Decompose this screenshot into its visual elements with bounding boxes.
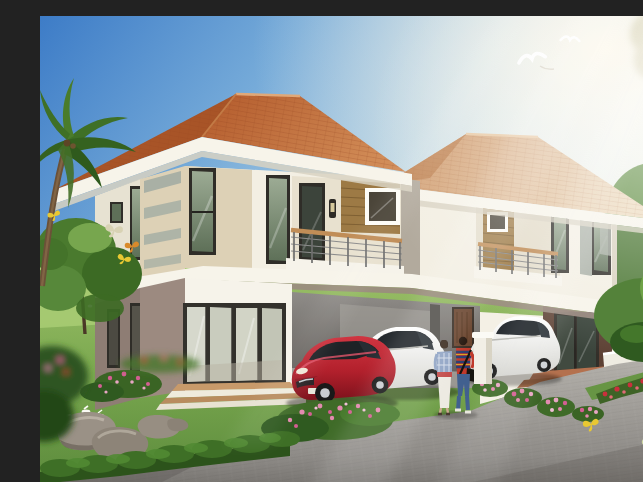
gate-post-cap xyxy=(472,332,494,338)
coconuts xyxy=(64,140,71,147)
white-skirt xyxy=(438,377,451,408)
left-front-window xyxy=(266,175,290,264)
left-bay-window xyxy=(189,168,216,255)
sliding-glass-door xyxy=(183,303,286,385)
house-rendering-scene: Twin two-storey house exterior rendering xyxy=(40,16,643,482)
balcony-wall-lamp xyxy=(329,199,336,218)
